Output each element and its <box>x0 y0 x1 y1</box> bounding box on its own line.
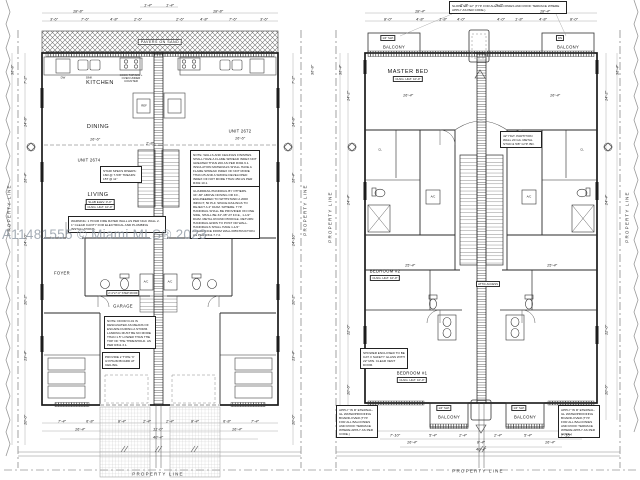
room-label-master-bed: MASTER BED <box>388 69 429 75</box>
dim-label: 18'-8" <box>213 9 223 14</box>
closet-label: CL <box>378 148 382 151</box>
ceiling-height-tag: CLNG. HGT. 10'-0" <box>397 377 427 383</box>
shower-enclosure-note: SHOWER ENCLOSED TO BE CAT. II SAFETY GLA… <box>360 348 408 369</box>
dim-label: 2'-2" <box>460 3 468 8</box>
partition-wall-note: 42" HGT. PARTITION WALL 20 GA. METAL STU… <box>500 131 542 148</box>
dim-label: 15'-4" <box>405 263 415 268</box>
dim-label: 2'-8" <box>146 141 154 146</box>
dim-label: 7'-10" <box>390 433 400 438</box>
property-line-label: PROPERTY LINE <box>303 184 308 235</box>
sink-label: SINK <box>86 76 93 79</box>
dim-label: 1'-4" <box>166 3 174 8</box>
triangle-marker-bottom <box>476 425 486 433</box>
slope-tag: 1/4" SLP. <box>380 35 395 41</box>
stair-right-unit <box>486 155 503 265</box>
party-wall <box>477 53 486 403</box>
dim-label: 7'-6" <box>81 17 89 22</box>
dim-label: 8'-4" <box>191 419 199 424</box>
dim-label: 6'-8" <box>223 419 231 424</box>
closet-label: CL <box>580 148 584 151</box>
balcony-label: BALCONY <box>514 415 536 420</box>
ceiling-height-tag: CLNG. HGT. 10'-0" <box>393 76 423 82</box>
stair-specs-note: STAIR SPECS RISERS: 16R @ 7-5/8" TREADS:… <box>100 166 142 183</box>
dim-label: 2'-6" <box>176 17 184 22</box>
dim-label: 4'-8" <box>110 17 118 22</box>
dim-label: 2'-4" <box>494 433 502 438</box>
balcony-label: BALCONY <box>557 45 579 50</box>
storm-door-note: NOTE: DOOR D-01 IS DESIGNATED AS MEANS O… <box>104 316 156 349</box>
floor-plan-sheet: A11481555 © Miami MLS® 2023 PROPERTY LIN… <box>0 0 640 480</box>
dim-label: 8'-4" <box>118 419 126 424</box>
dim-label: 18'-4" <box>540 9 550 14</box>
dim-label: 16'-4" <box>291 173 296 183</box>
ac-label: A/C <box>431 195 436 198</box>
balcony-top-right <box>542 33 594 53</box>
dim-label: 12'-0" <box>604 325 609 335</box>
room-label-bedroom1: BEDROOM #1 <box>397 371 427 376</box>
waterproofing-note: APPLY 'W R' ETERNAL-GL WATERPROOFING BOA… <box>336 405 378 438</box>
dim-label: 10'-6" <box>346 385 351 395</box>
dim-label: 18'-8" <box>73 9 83 14</box>
dim-label: 14'-2" <box>346 91 351 101</box>
gypsum-note: PROVIDE 2 TYPE 'X' GYPSUM BOARD AT CEILI… <box>102 352 140 369</box>
dim-label: 2'-4" <box>166 419 174 424</box>
dim-label: 4'-8" <box>200 17 208 22</box>
dim-label: 18'-4" <box>415 9 425 14</box>
attic-access-tag: ATTIC ACCESS <box>476 281 500 287</box>
dim-label: 8'-0" <box>570 17 578 22</box>
dim-label: 36'-8" <box>10 65 15 75</box>
room-label-bedroom2: BEDROOM #2 <box>370 269 400 274</box>
property-line-label: PROPERTY LINE <box>625 191 630 242</box>
balcony-label: BALCONY <box>438 415 460 420</box>
dim-label: 7'-2" <box>23 76 28 84</box>
dim-label: 8'-4" <box>477 440 485 445</box>
dim-label: 14'-8" <box>291 117 296 127</box>
unit-label-2672: UNIT 2672 <box>229 129 252 134</box>
ceiling-height-tag: CLNG. HGT. 10'-0" <box>370 275 400 281</box>
pavers-label: PAVERS ON SAND <box>138 39 182 45</box>
cooktop-label: COOK TOP/MW + OVEN UNDER COUNTER <box>117 74 145 84</box>
garage-door-zone <box>172 375 215 403</box>
ref-label: REF <box>141 104 147 107</box>
slope-tag: 1/4" SLP. <box>511 405 526 411</box>
dim-label: 1'-4" <box>144 3 152 8</box>
dim-label: 14'-8" <box>23 117 28 127</box>
dim-label: 16'-4" <box>232 427 242 432</box>
dim-label: 7'-4" <box>251 419 259 424</box>
room-label-foyer: FOYER <box>54 271 70 276</box>
driveway-hatch <box>170 407 220 477</box>
property-line-label: PROPERTY LINE <box>328 191 333 242</box>
stair-right-unit <box>162 150 179 207</box>
dim-label: 1'-8" <box>439 17 447 22</box>
dim-label: 13'-4" <box>291 351 296 361</box>
room-label-dining: DINING <box>87 124 109 130</box>
dim-label: 16'-4" <box>75 427 85 432</box>
dim-label: 4'-8" <box>539 17 547 22</box>
right-plan <box>348 14 612 468</box>
dim-label: 16'-4" <box>23 173 28 183</box>
room-label-garage: GARAGE <box>113 304 133 309</box>
dim-label: 40'-4" <box>153 435 163 440</box>
dim-label: 4'-8" <box>416 17 424 22</box>
driveway-hatch <box>100 407 150 477</box>
balcony-label: BALCONY <box>383 45 405 50</box>
room-label-living: LIVING <box>87 192 108 198</box>
dim-label: 7'-6" <box>229 17 237 22</box>
dim-label: 24'-4" <box>346 195 351 205</box>
property-line-label: PROPERTY LINE <box>452 469 503 474</box>
dim-label: 14'-10" <box>291 234 296 246</box>
ceiling-height-tag: CLNG. HGT. 10'-0" <box>85 204 115 210</box>
dim-label: 3'-6" <box>260 17 268 22</box>
entry-steps <box>140 296 177 312</box>
dim-label: 36'-4" <box>338 65 343 75</box>
dim-label: 7'-2" <box>291 76 296 84</box>
dim-label: 14'-2" <box>604 91 609 101</box>
stair-left-unit <box>460 155 477 265</box>
dim-label: 1'-8" <box>515 17 523 22</box>
dim-label: 10'-2" <box>291 295 296 305</box>
dim-label: 16'-4" <box>550 93 560 98</box>
dim-label: 36'-8" <box>310 65 315 75</box>
slope-tag: DN <box>556 35 564 41</box>
property-lines <box>4 30 636 470</box>
dim-label: 2'-2" <box>495 3 503 8</box>
dim-label: 4'-0" <box>457 17 465 22</box>
dim-label: 16'-6" <box>235 136 245 141</box>
dim-label: 16'-4" <box>545 440 555 445</box>
left-plan <box>27 31 292 477</box>
dim-label: 5'-4" <box>429 433 437 438</box>
dim-label: 2'-4" <box>143 419 151 424</box>
dim-label: 16'-4" <box>407 440 417 445</box>
unit-label-2674: UNIT 2674 <box>78 158 101 163</box>
dim-label: 10'-0" <box>291 415 296 425</box>
mls-watermark: A11481555 © Miami MLS® 2023 <box>2 227 207 242</box>
dim-label: 16'-6" <box>90 137 100 142</box>
dim-label: 5'-4" <box>524 433 532 438</box>
step-roof-tag: 2'-4"x7'-0" STEP ROOF <box>106 290 139 296</box>
dim-label: 3'-6" <box>50 17 58 22</box>
dim-label: 4'-0" <box>497 17 505 22</box>
dim-label: 2'-4" <box>459 433 467 438</box>
dim-label: 24'-4" <box>604 195 609 205</box>
dim-label: 10'-0" <box>23 415 28 425</box>
dim-label: 36'-4" <box>615 65 620 75</box>
dim-label: 7'-10" <box>561 433 571 438</box>
ac-label: A/C <box>527 195 532 198</box>
room-label-kitchen: KITCHEN <box>86 80 114 86</box>
dim-label: 8'-0" <box>384 17 392 22</box>
dim-label: 15'-4" <box>547 263 557 268</box>
dim-label: 10'-6" <box>604 385 609 395</box>
dim-label: 16'-4" <box>403 93 413 98</box>
dim-label: 7'-4" <box>58 419 66 424</box>
dim-label: 13'-4" <box>23 351 28 361</box>
dim-label: 11'-0" <box>153 427 163 432</box>
dim-label: 10'-2" <box>23 295 28 305</box>
garage-door-zone <box>105 375 148 403</box>
ac-label: A/C <box>168 280 173 283</box>
flame-spread-note: NOTE: WALLS AND CEILINGS FINISHES SHALL … <box>190 150 260 187</box>
dim-label: 2'-6" <box>134 17 142 22</box>
dim-label: 40'-4" <box>476 447 486 452</box>
dim-label: 12'-0" <box>346 325 351 335</box>
dw-label: DW <box>61 76 66 79</box>
dim-label: 6'-8" <box>86 419 94 424</box>
slope-tag: 1/4" SLP. <box>436 405 451 411</box>
ac-label: A/C <box>144 280 149 283</box>
property-line-label: PROPERTY LINE <box>132 472 183 477</box>
